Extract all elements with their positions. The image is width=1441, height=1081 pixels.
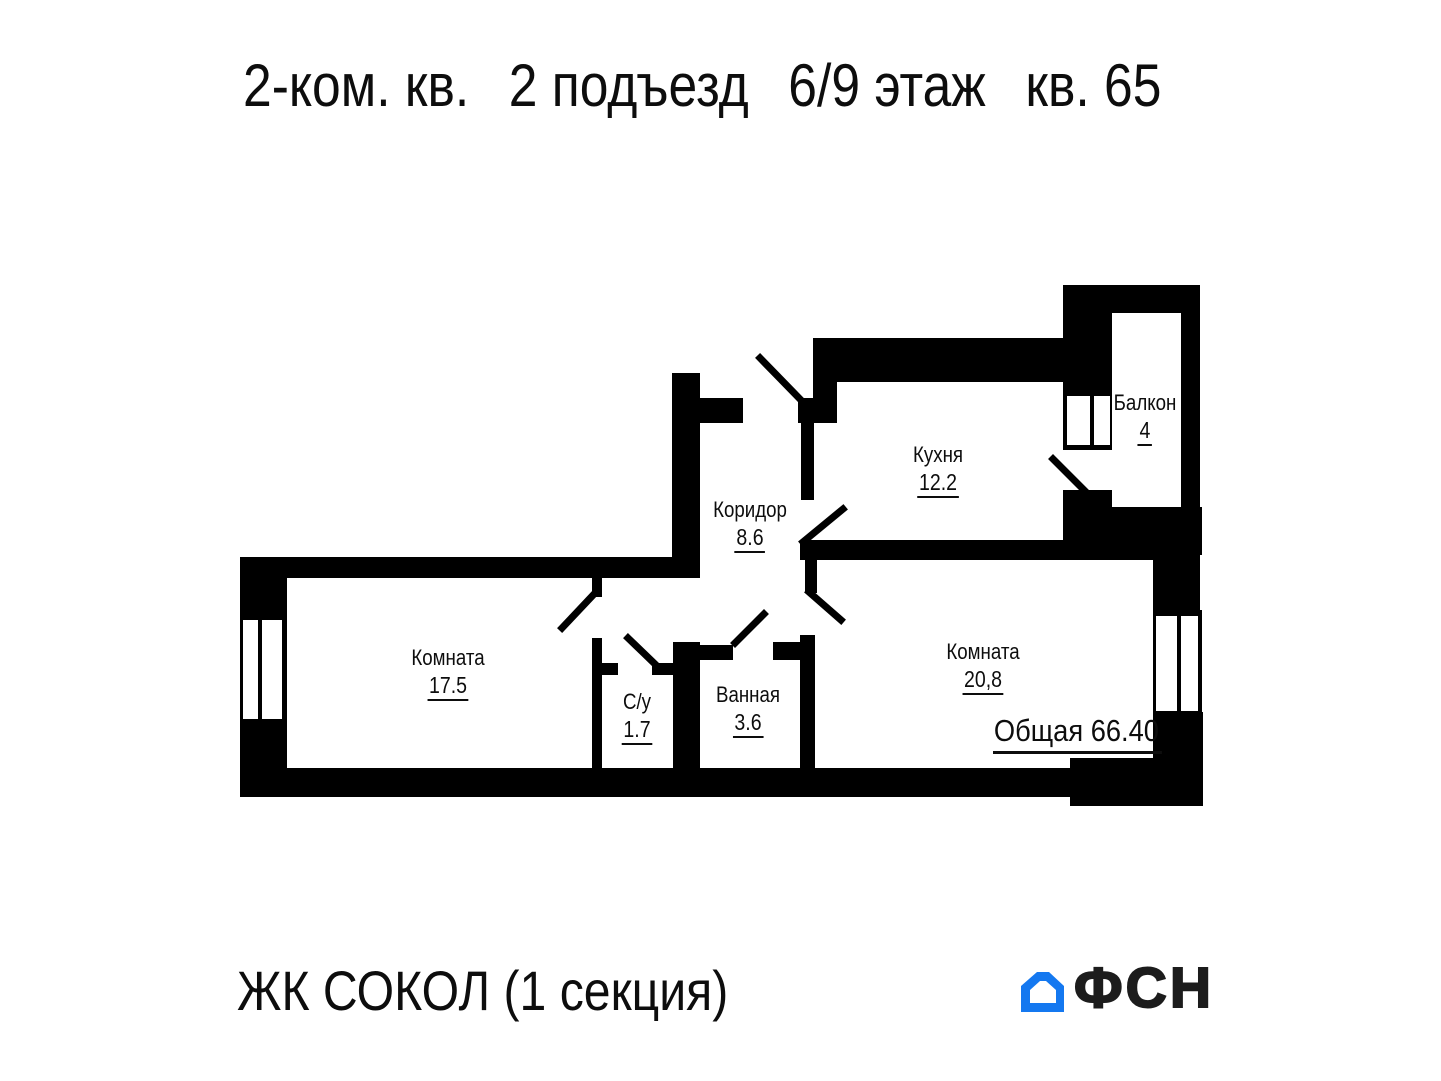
room-name: Кухня: [913, 443, 963, 467]
room-label-room1: Комната 17.5: [411, 646, 484, 701]
door-kitchen: [803, 509, 843, 542]
wall-room1-top: [240, 557, 700, 578]
wall-right-corner-block: [1112, 507, 1202, 555]
wall-wc-bath: [673, 642, 700, 768]
room-name: Комната: [946, 640, 1019, 664]
room-area: 3.6: [733, 710, 764, 738]
door-room2: [809, 592, 841, 620]
room-area: 1.7: [622, 717, 653, 745]
door-bath: [735, 614, 764, 643]
room-label-balcony: Балкон 4: [1114, 391, 1177, 446]
wall-right-upper: [1153, 555, 1200, 615]
wall-kitchen-top: [813, 338, 1063, 382]
door-balcony: [1053, 459, 1086, 492]
floor-plan-page: 2-ком. кв. 2 подъезд 6/9 этаж кв. 65: [0, 0, 1441, 1081]
window-room1-pane: [262, 620, 282, 719]
room-area: 4: [1138, 418, 1152, 446]
room-name: Коридор: [713, 498, 787, 522]
wall-bottom-right-step: [1070, 758, 1153, 806]
wall-corridor-left: [672, 373, 700, 578]
wall-entry-post: [798, 398, 813, 423]
wall-corridor-kitchen: [801, 423, 814, 500]
wall-entry-stub: [700, 398, 743, 423]
window-balcony-pane: [1094, 396, 1110, 445]
wall-balcony-left-lower: [1063, 490, 1112, 543]
room-name: Комната: [411, 646, 484, 670]
window-room2-pane: [1156, 616, 1177, 711]
wall-room2-door-stub: [805, 555, 817, 593]
room-label-wc: С/у 1.7: [622, 690, 653, 745]
developer-logo: ФСН: [1014, 960, 1214, 1024]
wall-bath-room2: [800, 635, 815, 768]
project-name: ЖК СОКОЛ (1 секция): [237, 961, 728, 1021]
total-area-label: Общая 66.40: [993, 714, 1162, 754]
house-icon: [1014, 960, 1074, 1024]
wall-bath-top-right: [773, 642, 800, 660]
room-name: Ванная: [716, 683, 780, 707]
door-wc: [628, 638, 656, 665]
wall-balcony-left-upper: [1063, 285, 1112, 390]
room-area: 20,8: [962, 667, 1003, 695]
room-label-room2: Комната 20,8: [946, 640, 1019, 695]
window-room2-pane: [1181, 616, 1198, 711]
room-area: 8.6: [735, 525, 766, 553]
wall-bottom: [240, 768, 1070, 797]
window-balcony-pane: [1067, 396, 1090, 445]
total-area-value: 66.40: [1091, 713, 1159, 748]
room-label-bath: Ванная 3.6: [716, 683, 780, 738]
window-room1-pane: [243, 620, 258, 719]
wall-balcony-right: [1181, 285, 1200, 507]
total-area-caption: Общая: [994, 713, 1083, 748]
room-area: 12.2: [917, 470, 958, 498]
wall-wc-door-jamb-left: [602, 663, 618, 675]
wall-bath-top-left: [673, 645, 733, 660]
room-name: С/у: [622, 690, 653, 714]
logo-text: ФСН: [1074, 960, 1214, 1017]
wall-wc-left: [592, 638, 602, 768]
room-area: 17.5: [427, 673, 468, 701]
room-label-corridor: Коридор 8.6: [713, 498, 787, 553]
wall-kitchen-corner: [813, 382, 837, 423]
door-room1: [562, 592, 596, 628]
room-name: Балкон: [1114, 391, 1177, 415]
room-label-kitchen: Кухня 12.2: [913, 443, 963, 498]
door-entry: [760, 358, 799, 398]
